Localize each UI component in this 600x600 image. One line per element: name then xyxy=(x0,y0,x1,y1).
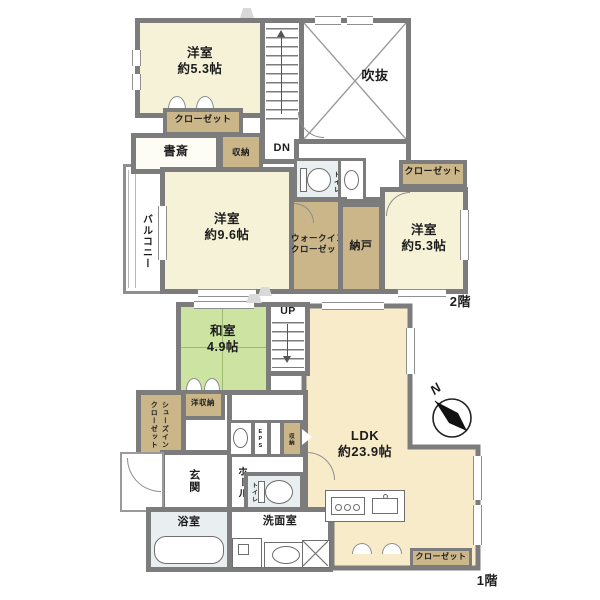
washroom-label: 洗面室 xyxy=(237,515,323,529)
storage-room-label: 納戸 xyxy=(338,240,384,254)
window xyxy=(198,289,256,297)
western-room-c-label: 洋室 約5.3帖 xyxy=(394,223,454,254)
toilet-1f-label: トイレ xyxy=(249,478,257,506)
floor1-label: 1階 xyxy=(448,573,498,589)
western-storage-label: 洋収納 xyxy=(181,398,225,407)
window xyxy=(473,456,482,500)
washbasin xyxy=(233,428,248,448)
pipe-space-box xyxy=(302,540,330,568)
void-label: 吹抜 xyxy=(345,68,405,84)
storage-2f-label: 収納 xyxy=(219,147,263,158)
stairs-down-arrowhead xyxy=(277,30,285,37)
stairs-down-arrow xyxy=(281,36,282,114)
window xyxy=(315,16,341,25)
window xyxy=(406,328,415,374)
closet-b-label: クローゼット xyxy=(399,166,467,177)
ldk-label: LDK 約23.9帖 xyxy=(305,428,425,461)
toilet-tank xyxy=(300,168,307,192)
toilet-bowl xyxy=(307,168,331,192)
vanity-basin xyxy=(272,546,300,564)
closet-a-label: クローゼット xyxy=(163,114,243,125)
western-room-b-label: 洋室 約9.6帖 xyxy=(177,212,277,243)
floor-plan-canvas: バルコニー 洋室 約5.3帖 DN 吹抜 クローゼット 書斎 収納 洋室 約9.… xyxy=(0,0,600,600)
bathroom-label: 浴室 xyxy=(151,516,227,530)
door-notch xyxy=(302,429,312,445)
vent-mark xyxy=(240,8,254,18)
japanese-room-label: 和室 4.9帖 xyxy=(190,324,256,355)
stove-burner xyxy=(335,504,342,511)
western-room-a-label: 洋室 約5.3帖 xyxy=(150,46,250,77)
window xyxy=(347,16,373,25)
stairs-up-arrowhead xyxy=(283,356,291,363)
eps-label: EPS xyxy=(257,424,264,454)
bathtub xyxy=(154,536,224,564)
shoes-in-closet-label: シューズイン クローゼット xyxy=(148,396,170,454)
stairs-up-label: UP xyxy=(266,305,310,318)
window xyxy=(473,505,482,545)
closet-c-label: クローゼット xyxy=(410,552,472,562)
kitchen-faucet xyxy=(383,494,388,499)
stove-burner xyxy=(353,504,360,511)
stove-burner xyxy=(344,504,351,511)
stairs-up-arrow xyxy=(287,324,288,358)
window xyxy=(194,301,254,309)
toilet-tank xyxy=(258,481,265,503)
washing-machine-drum xyxy=(238,544,249,555)
window xyxy=(132,74,141,90)
study-label: 書斎 xyxy=(135,144,217,159)
window xyxy=(322,302,384,310)
storage-1f-label: 収納 xyxy=(287,424,294,454)
toilet-bowl xyxy=(265,480,293,504)
washbasin xyxy=(344,170,359,190)
balcony-door xyxy=(158,206,167,260)
window xyxy=(132,50,141,66)
window xyxy=(460,210,469,260)
entrance-label: 玄関 xyxy=(186,462,200,500)
balcony-label: バルコニー xyxy=(139,195,152,287)
kitchen-sink xyxy=(372,498,398,514)
pipe-space-cross-icon xyxy=(303,541,328,566)
